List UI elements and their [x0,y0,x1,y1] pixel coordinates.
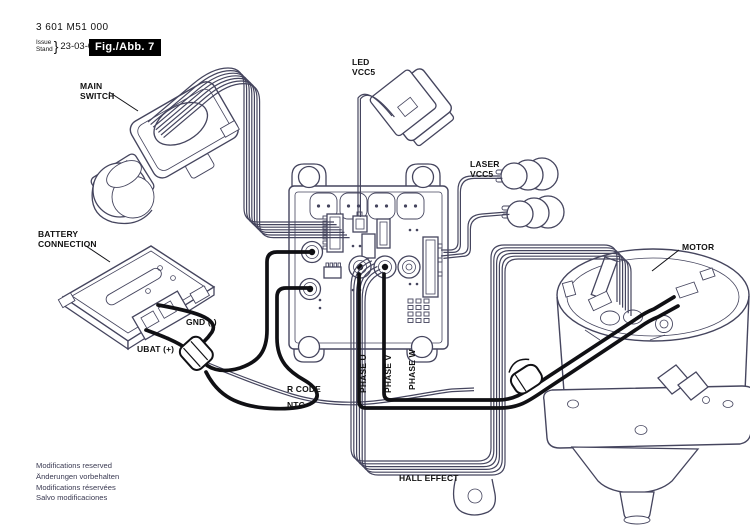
ubat-label: UBAT (+) [137,345,174,355]
battery-connector-drawing [58,246,214,349]
notice-line-es: Salvo modificaciones [36,493,119,504]
wiring-diagram-canvas [0,0,750,530]
led-label: LED VCC5 [352,58,386,78]
notice-line-en: Modifications reserved [36,461,119,472]
issue-label-de: Stand [36,46,53,53]
cable-clamp [503,354,545,396]
modifications-notice: Modifications reserved Änderungen vorbeh… [36,461,119,504]
issue-brace: } [54,38,59,54]
hall-effect-label: HALL EFFECT [399,474,459,484]
part-number: 3 601 M51 000 [36,22,109,33]
issue-label-en: Issue [36,39,53,46]
phase-v-label: PHASE V [383,355,393,393]
motor-drawing [454,249,750,524]
ntc-label: NTC [287,401,305,411]
gnd-label: GND (-) [186,318,217,328]
r-code-label: R CODE [287,385,321,395]
figure-label: Fig./Abb. 7 [89,39,161,56]
laser-label: LASER VCC5 [470,160,510,180]
notice-line-fr: Modifications réservées [36,483,119,494]
main-switch-label: MAIN SWITCH [80,82,130,102]
notice-line-de: Änderungen vorbehalten [36,472,119,483]
phase-w-label: PHASE W [407,349,417,390]
motor-label: MOTOR [682,243,714,253]
battery-connection-label: BATTERY CONNECTION [38,230,126,250]
phase-u-label: PHASE U [358,354,368,393]
wiring-diagram-page: 3 601 M51 000 Issue Stand } 23-03-09 Fig… [0,0,750,530]
